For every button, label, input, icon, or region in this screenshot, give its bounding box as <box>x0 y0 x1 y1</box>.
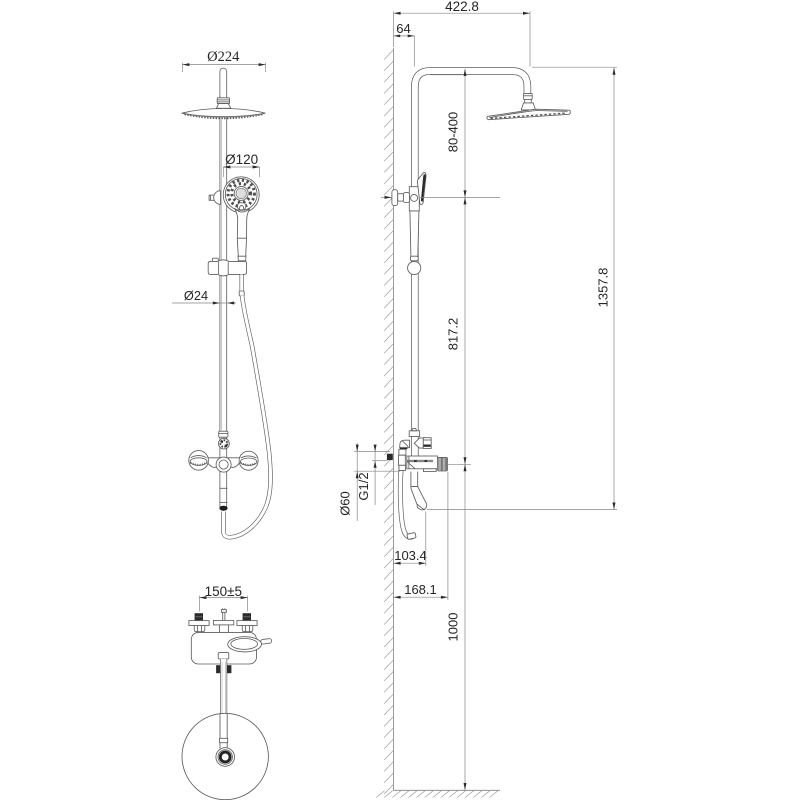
svg-text:64: 64 <box>396 21 410 36</box>
svg-text:1357.8: 1357.8 <box>595 268 610 308</box>
svg-text:G1/2: G1/2 <box>356 472 371 500</box>
svg-text:168.1: 168.1 <box>404 582 437 597</box>
svg-text:103.4: 103.4 <box>394 548 427 563</box>
svg-text:817.2: 817.2 <box>445 318 460 351</box>
svg-text:80-400: 80-400 <box>445 112 460 152</box>
svg-text:150±5: 150±5 <box>205 584 242 599</box>
svg-text:Ø24: Ø24 <box>184 288 208 303</box>
svg-text:Ø60: Ø60 <box>337 491 352 516</box>
svg-text:Ø224: Ø224 <box>207 49 240 65</box>
svg-text:1000: 1000 <box>445 613 460 642</box>
svg-text:422.8: 422.8 <box>445 0 479 14</box>
svg-text:Ø120: Ø120 <box>225 152 258 167</box>
